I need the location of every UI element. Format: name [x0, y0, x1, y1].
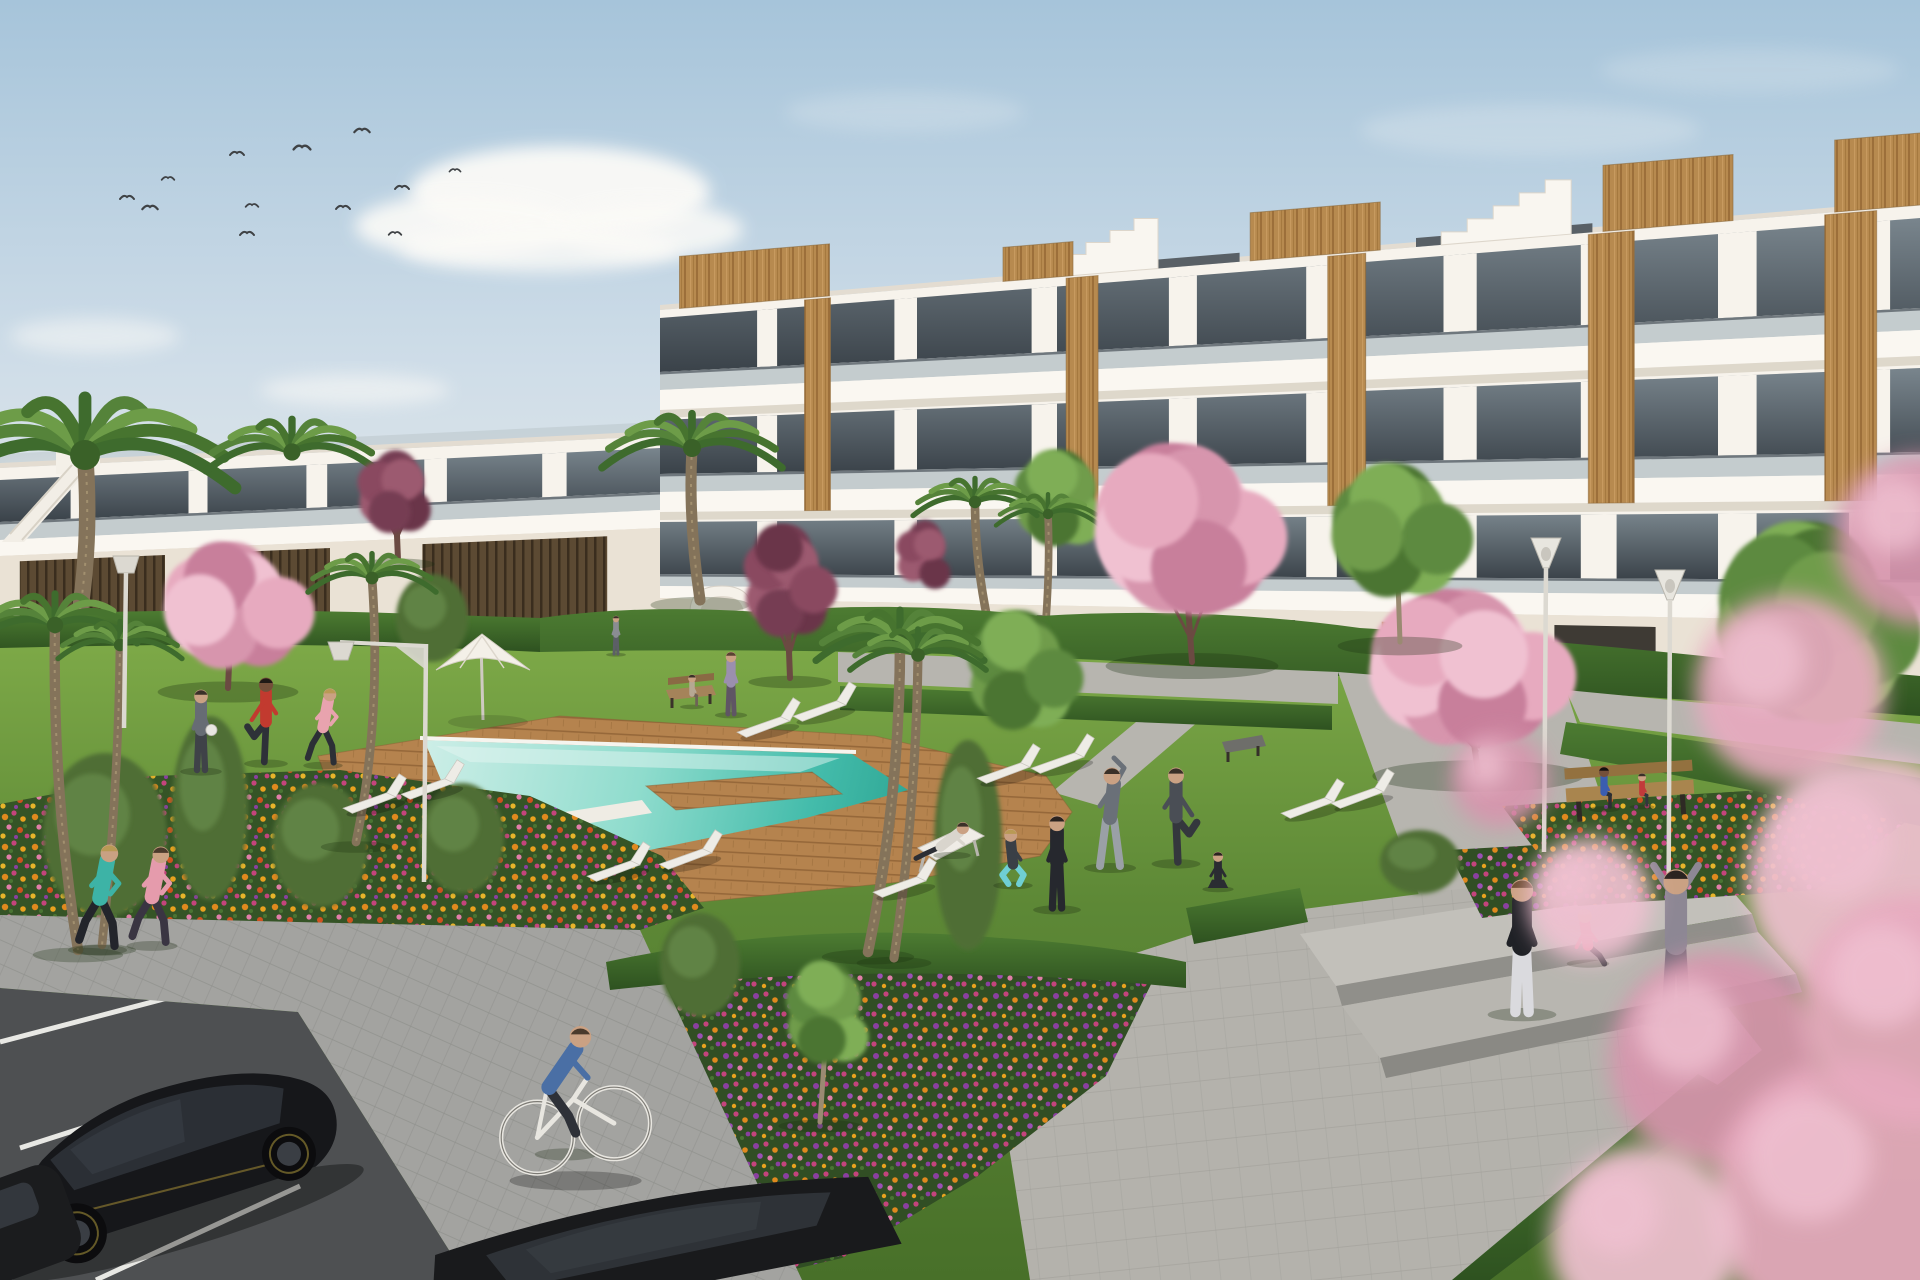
wood-accent-panel [805, 298, 831, 511]
ellipse [1665, 579, 1675, 593]
blurred-blossom [1574, 1169, 1660, 1255]
polyline [1526, 951, 1529, 1012]
window-pier [424, 458, 447, 502]
person-shadow [1630, 805, 1655, 810]
rooftop-wood-box [1003, 242, 1073, 282]
person-shadow [303, 762, 343, 770]
window-pier [542, 453, 566, 498]
person-shadow [1033, 905, 1081, 914]
canopy-tuft [1026, 449, 1078, 501]
polyline [1052, 866, 1054, 908]
canopy-tuft [1402, 503, 1474, 575]
polyline [733, 685, 734, 714]
architectural-render [0, 0, 1920, 1280]
polyline [203, 733, 205, 770]
canopy-tuft [790, 566, 838, 614]
blurred-blossom [1719, 619, 1805, 705]
lamp-pole [124, 573, 126, 728]
palm-crown [283, 443, 300, 460]
person-shadow [933, 852, 970, 859]
person-shadow [993, 882, 1033, 890]
ellipse [403, 585, 446, 629]
person-shadow [1084, 863, 1136, 873]
canopy-tuft [368, 491, 410, 533]
canopy-tuft [914, 528, 945, 559]
ellipse [668, 926, 716, 978]
canopy-tuft [243, 577, 315, 649]
wood-accent-panel [1328, 253, 1366, 505]
canopy-tuft [919, 558, 950, 589]
shrub [1380, 830, 1460, 894]
cloud [1360, 104, 1700, 156]
window-pier [894, 298, 917, 361]
person-shadow [680, 705, 704, 710]
lamp-head [113, 556, 139, 573]
polyline [728, 685, 729, 714]
cloud [1600, 48, 1900, 92]
person-shadow [715, 712, 747, 718]
polyline [617, 637, 618, 654]
person-shadow [1588, 806, 1619, 812]
window-pier [1444, 253, 1477, 332]
rooftop-wood-box [1835, 132, 1920, 212]
blurred-blossom [1745, 1095, 1871, 1221]
palm-crown [47, 617, 63, 633]
shrub [172, 716, 248, 900]
window-pier [189, 470, 208, 514]
person-shadow [127, 941, 178, 951]
canopy-tuft [1331, 500, 1403, 572]
polyline [197, 733, 199, 770]
blurred-blossom [1544, 854, 1600, 910]
window-pier [757, 309, 777, 367]
cloud [10, 318, 180, 354]
canopy-tuft [755, 524, 803, 572]
lamp-pole [1544, 568, 1546, 852]
person-shadow [606, 653, 626, 657]
window-pier [894, 409, 917, 470]
wood-accent-panel [1825, 211, 1877, 501]
wood-accent-panel [1588, 231, 1634, 503]
canopy-tuft [1440, 610, 1528, 698]
window-pier [1718, 375, 1757, 456]
window-pier [1169, 275, 1197, 346]
polyline [1060, 866, 1062, 908]
cloud [785, 92, 1025, 132]
canopy-tuft [164, 574, 236, 646]
cloud [400, 224, 680, 272]
window-pier [1032, 287, 1057, 354]
blurred-blossom [1778, 786, 1891, 899]
rooftop-wood-box [1250, 202, 1380, 261]
ellipse [282, 799, 340, 861]
person-shadow [180, 768, 222, 776]
window-pier [1306, 517, 1337, 578]
polyline [1515, 951, 1518, 1012]
window-pier [1581, 514, 1617, 578]
scene-canvas [0, 0, 1920, 1280]
cloud [260, 374, 450, 406]
canopy-tuft [798, 1016, 846, 1064]
ellipse [1388, 838, 1436, 870]
palm-crown [911, 648, 925, 662]
ellipse [1541, 547, 1551, 561]
canopy-tuft [1103, 453, 1199, 549]
window-pier [1444, 386, 1477, 460]
palm-crown [969, 496, 981, 508]
window-pier [306, 464, 327, 508]
person-shadow [1488, 1008, 1557, 1021]
canopy-tuft [797, 961, 845, 1009]
ball [206, 724, 217, 735]
ellipse [428, 797, 478, 852]
palm-crown [1043, 509, 1053, 519]
canopy-tuft [1025, 649, 1084, 708]
person-shadow [73, 945, 127, 955]
palm-crown [366, 572, 379, 585]
palm-crown [683, 439, 701, 457]
polyline [614, 637, 615, 654]
lamp-pole [424, 644, 426, 882]
blurred-blossom [1464, 744, 1507, 787]
window-pier [1718, 231, 1757, 318]
rooftop-wood-box [1603, 155, 1733, 232]
palm-crown [70, 440, 100, 470]
shrub [660, 913, 740, 1017]
blurred-blossom [1637, 979, 1734, 1076]
